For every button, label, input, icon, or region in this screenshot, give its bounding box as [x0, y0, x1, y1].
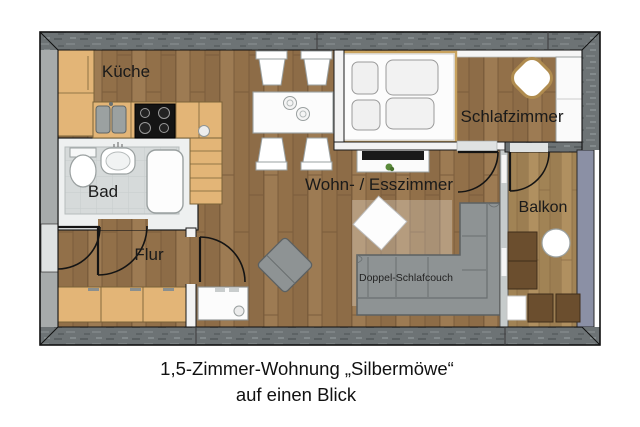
caption-line-2: auf einen Blick: [236, 384, 357, 405]
bottom-wall: [40, 327, 600, 345]
tv: [362, 151, 424, 160]
floor-plan-page: Küche Schlafzimmer Bad Flur Wohn- / Essz…: [0, 0, 640, 427]
washing-machine: [198, 287, 248, 320]
balcony-chair: [556, 294, 580, 322]
floor-plan-svg: Küche Schlafzimmer Bad Flur Wohn- / Essz…: [0, 0, 640, 427]
hall-door-opening: [185, 237, 197, 284]
kitchen-shelf: [190, 138, 222, 204]
balcony-chair: [528, 294, 553, 322]
shower-tub: [147, 150, 183, 213]
bedroom-left-wall: [334, 50, 344, 150]
sofa-label: Doppel-Schlafcouch: [359, 272, 453, 284]
left-wall: [40, 50, 58, 327]
bedroom-door-opening: [457, 141, 497, 151]
plate: [199, 126, 210, 137]
window-sill: [441, 50, 582, 57]
bathroom: [58, 138, 198, 230]
caption-line-1: 1,5-Zimmer-Wohnung „Silbermöwe“: [160, 358, 454, 379]
entrance-opening: [41, 224, 58, 272]
bedroom-label: Schlafzimmer: [461, 107, 564, 126]
balcony-label: Balkon: [519, 199, 568, 216]
balcony-bench: [508, 232, 537, 289]
duvet: [386, 60, 438, 95]
balcony-door-opening: [510, 143, 548, 152]
right-wall: [582, 32, 600, 150]
hallway: [58, 287, 248, 322]
plate: [284, 97, 297, 110]
plate: [297, 108, 310, 121]
top-wall: [40, 32, 600, 50]
tv-sideboard: [357, 150, 429, 172]
hall-wardrobe: [58, 287, 186, 322]
balcony-side-table: [507, 296, 526, 320]
pillow: [352, 100, 380, 130]
bathroom-door-opening: [98, 219, 148, 230]
living-dining-label: Wohn- / Esszimmer: [305, 175, 453, 194]
double-bed: [342, 52, 456, 142]
kitchen-label: Küche: [102, 62, 150, 81]
bathroom-label: Bad: [88, 182, 118, 201]
balcony-round-table: [542, 229, 570, 257]
pillow: [352, 62, 378, 94]
duvet: [386, 98, 434, 129]
hallway-label: Flur: [134, 245, 164, 264]
stove: [135, 104, 175, 138]
